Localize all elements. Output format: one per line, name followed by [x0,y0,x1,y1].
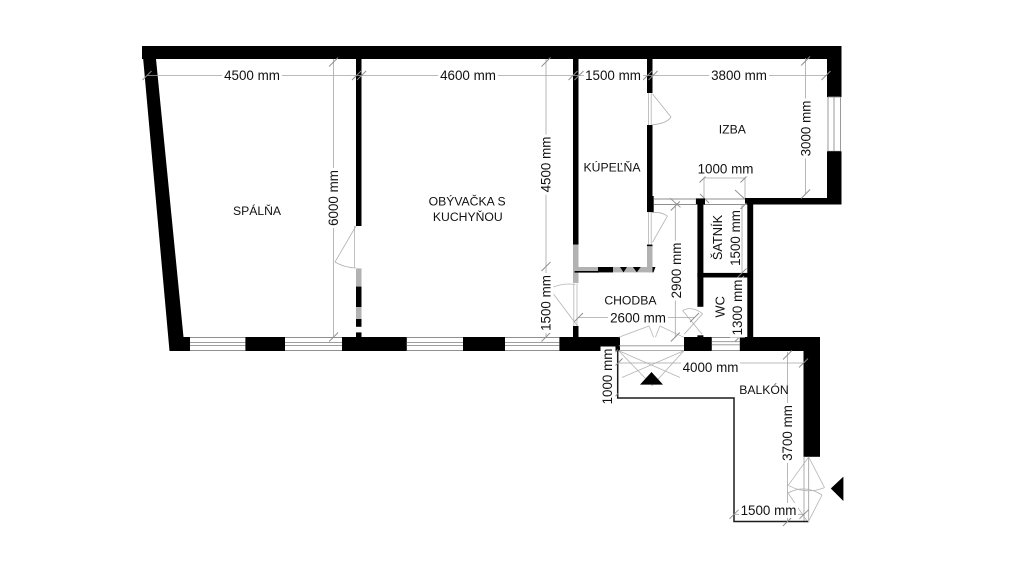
svg-text:SPÁLŇA: SPÁLŇA [233,203,282,218]
svg-text:4500 mm: 4500 mm [224,68,280,83]
svg-text:IZBA: IZBA [719,123,747,137]
svg-text:KUCHYŇOU: KUCHYŇOU [433,209,503,224]
svg-text:1300 mm: 1300 mm [730,280,745,336]
svg-text:4500 mm: 4500 mm [539,137,554,193]
svg-text:BALKÓN: BALKÓN [739,382,788,397]
svg-text:3000 mm: 3000 mm [799,101,814,157]
svg-text:2600 mm: 2600 mm [610,311,666,326]
svg-text:ŠATNÍK: ŠATNÍK [710,214,725,260]
svg-text:4000 mm: 4000 mm [683,360,739,375]
svg-text:1500 mm: 1500 mm [728,210,743,266]
svg-text:KÚPEĽŇA: KÚPEĽŇA [584,159,642,174]
svg-text:1500 mm: 1500 mm [539,275,554,331]
svg-text:2900 mm: 2900 mm [669,243,684,299]
svg-text:1500 mm: 1500 mm [741,503,797,518]
svg-text:1000 mm: 1000 mm [698,162,754,177]
svg-text:1000 mm: 1000 mm [600,349,615,405]
svg-text:3800 mm: 3800 mm [711,68,767,83]
svg-text:6000 mm: 6000 mm [326,170,341,226]
svg-text:3700 mm: 3700 mm [780,405,795,461]
svg-text:1500 mm: 1500 mm [585,68,641,83]
svg-text:CHODBA: CHODBA [604,293,657,307]
svg-text:4600 mm: 4600 mm [440,68,496,83]
svg-text:WC: WC [713,296,728,317]
svg-text:OBÝVAČKA S: OBÝVAČKA S [429,193,506,208]
